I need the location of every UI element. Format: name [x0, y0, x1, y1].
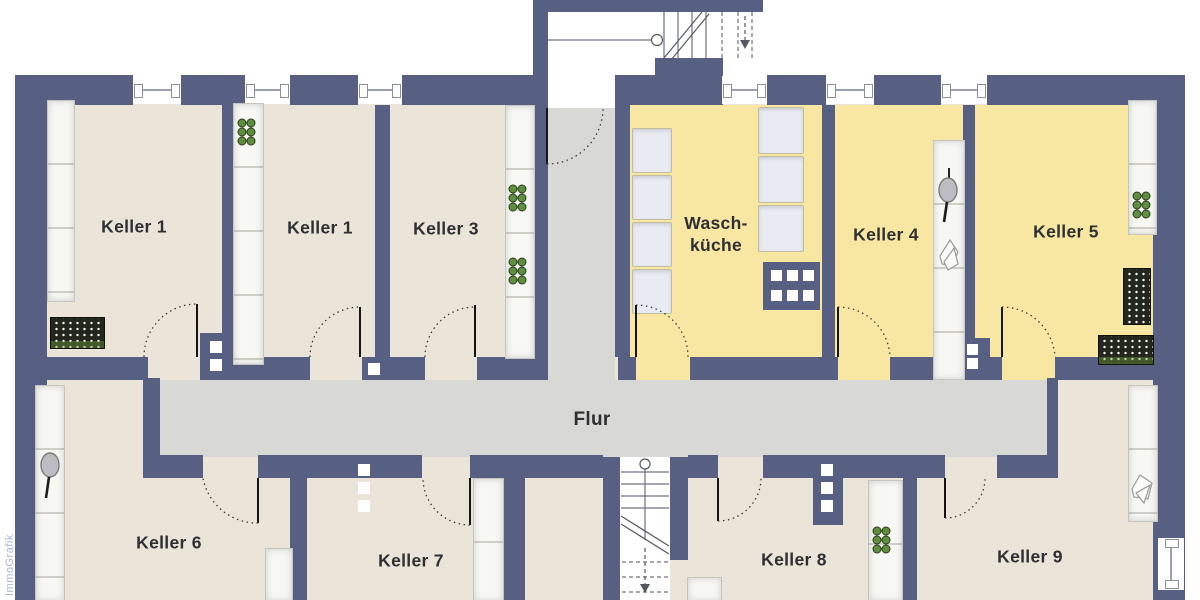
window: [941, 76, 987, 104]
basement-floor-plan: Keller 1 Keller 1 Keller 3 Wasch- küche …: [0, 0, 1200, 600]
slat-opening: [821, 482, 833, 494]
wall: [763, 455, 813, 478]
window: [133, 76, 181, 104]
washing-machine: [632, 222, 672, 267]
storage-shelf: [933, 140, 965, 380]
storage-box: [687, 577, 722, 600]
room-label-keller-9: Keller 9: [997, 547, 1063, 568]
slat-opening: [821, 464, 833, 476]
wall: [143, 455, 203, 478]
wall: [375, 105, 390, 357]
slat-opening: [210, 359, 222, 371]
room-label-keller-4: Keller 4: [853, 225, 919, 246]
wall: [470, 455, 603, 478]
slat-opening: [821, 500, 833, 512]
storage-shelf: [505, 105, 535, 359]
slat-opening: [967, 344, 978, 355]
washing-machine: [758, 107, 804, 154]
wall: [533, 105, 548, 357]
wine-crate-icon: [1123, 268, 1151, 325]
wall: [843, 455, 903, 478]
room-label-waschkueche-line1: Wasch-: [684, 213, 747, 235]
room-label-keller-1a: Keller 1: [101, 217, 167, 238]
slat-opening: [358, 482, 370, 494]
wall: [1047, 378, 1058, 478]
room-label-waschkueche-line2: küche: [684, 235, 747, 257]
slat-opening: [358, 464, 370, 476]
room-label-keller-7: Keller 7: [378, 551, 444, 572]
wall: [477, 357, 548, 380]
wall: [655, 58, 723, 75]
storage-shelf: [233, 103, 264, 365]
wall: [533, 0, 763, 12]
slat-opening: [358, 500, 370, 512]
wall: [874, 75, 941, 105]
window: [1158, 538, 1184, 590]
washing-machine: [632, 269, 672, 314]
storage-shelf: [265, 548, 293, 600]
entrance-opening: [548, 75, 615, 108]
window: [722, 76, 767, 104]
washing-machine: [632, 175, 672, 220]
washing-machine: [758, 156, 804, 203]
slat-opening: [967, 358, 978, 369]
wall: [688, 455, 718, 478]
window: [358, 76, 402, 104]
storage-shelf: [47, 100, 75, 302]
wall: [533, 0, 548, 75]
wall: [181, 75, 245, 105]
entrance-corridor-floor: [548, 108, 615, 380]
wine-crate-icon: [1098, 335, 1154, 365]
storage-shelf: [473, 478, 504, 600]
room-label-keller-6: Keller 6: [136, 533, 202, 554]
hall-label-flur: Flur: [573, 409, 610, 431]
wall: [615, 75, 723, 105]
storage-shelf: [868, 480, 903, 600]
room-label-keller-3: Keller 3: [413, 219, 479, 240]
slat-opening: [210, 341, 222, 353]
wall: [258, 455, 422, 478]
wall: [618, 357, 636, 380]
wine-crate-icon: [50, 317, 105, 349]
interior-stairwell-floor: [620, 457, 670, 600]
wall: [290, 75, 358, 105]
wall: [917, 455, 945, 478]
window: [245, 76, 290, 104]
storage-shelf: [1128, 100, 1157, 235]
wall: [402, 75, 548, 105]
wall-stairwell: [670, 457, 688, 560]
wall: [822, 105, 835, 357]
washing-machine: [758, 205, 804, 252]
room-label-keller-5: Keller 5: [1033, 222, 1099, 243]
room-label-keller-1b: Keller 1: [287, 218, 353, 239]
slat-opening: [368, 363, 380, 375]
room-label-keller-8: Keller 8: [761, 550, 827, 571]
wall: [690, 357, 838, 380]
watermark-text: ImmoGrafik: [4, 534, 16, 596]
window: [826, 76, 874, 104]
storage-shelf: [1128, 385, 1158, 522]
storage-shelf: [35, 385, 65, 600]
laundry-cabinet: [763, 262, 820, 310]
wall-stairwell: [603, 457, 620, 600]
wall: [503, 472, 525, 600]
washing-machine: [632, 128, 672, 173]
wall: [903, 455, 917, 600]
wall: [615, 105, 630, 357]
room-label-waschkueche: Wasch- küche: [684, 213, 747, 257]
wall: [47, 357, 148, 380]
wall: [767, 75, 826, 105]
